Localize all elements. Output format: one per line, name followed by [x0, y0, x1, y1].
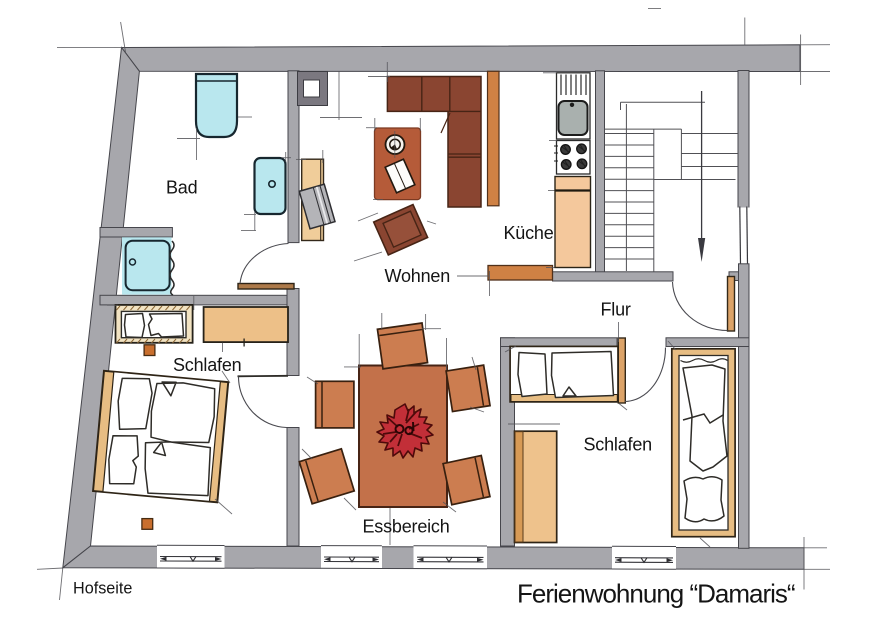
svg-text:Bad: Bad [166, 178, 197, 198]
svg-text:Hofseite: Hofseite [73, 580, 132, 598]
svg-text:Schlafen: Schlafen [173, 355, 241, 375]
svg-text:Essbereich: Essbereich [363, 517, 450, 537]
svg-text:Schlafen: Schlafen [584, 435, 652, 455]
svg-text:Ferienwohnung “Damaris“: Ferienwohnung “Damaris“ [517, 579, 795, 609]
svg-text:Wohnen: Wohnen [385, 266, 451, 286]
svg-text:Küche: Küche [504, 223, 554, 243]
svg-text:Flur: Flur [601, 300, 631, 320]
